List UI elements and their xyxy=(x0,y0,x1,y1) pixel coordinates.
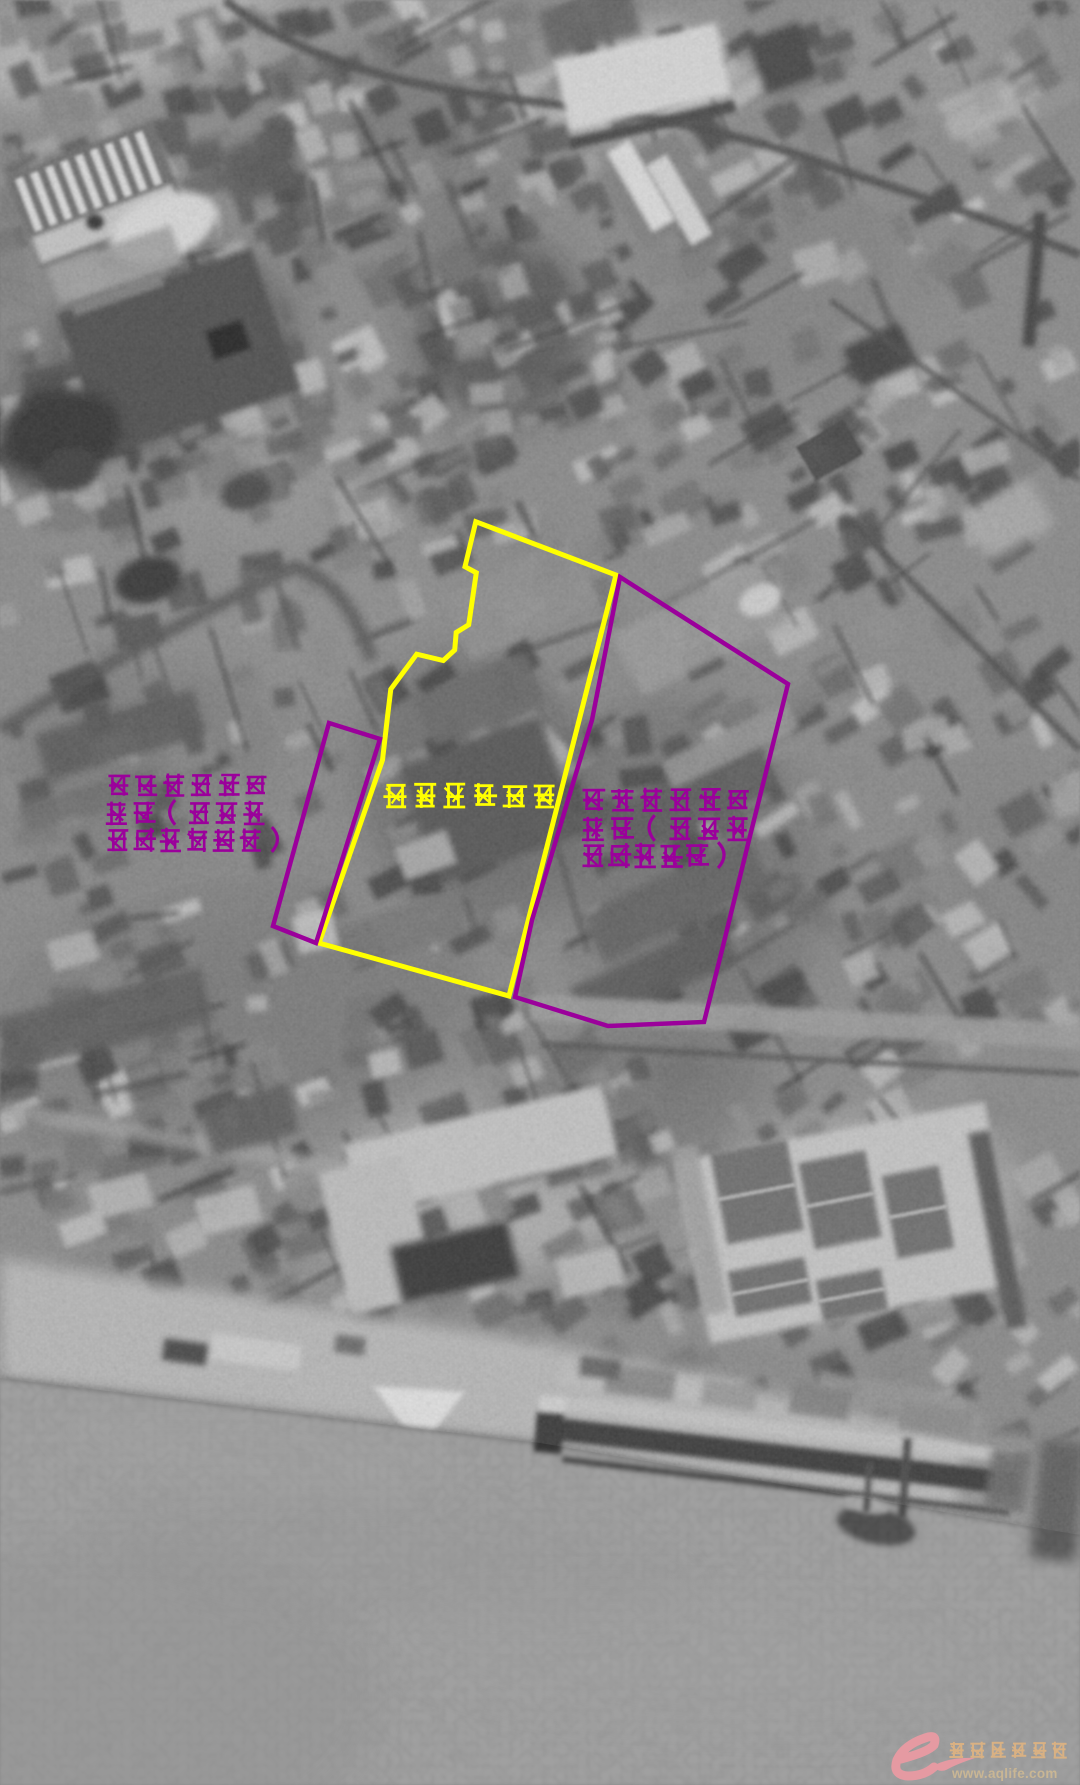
svg-text:www.aqlife.com: www.aqlife.com xyxy=(951,1766,1058,1781)
